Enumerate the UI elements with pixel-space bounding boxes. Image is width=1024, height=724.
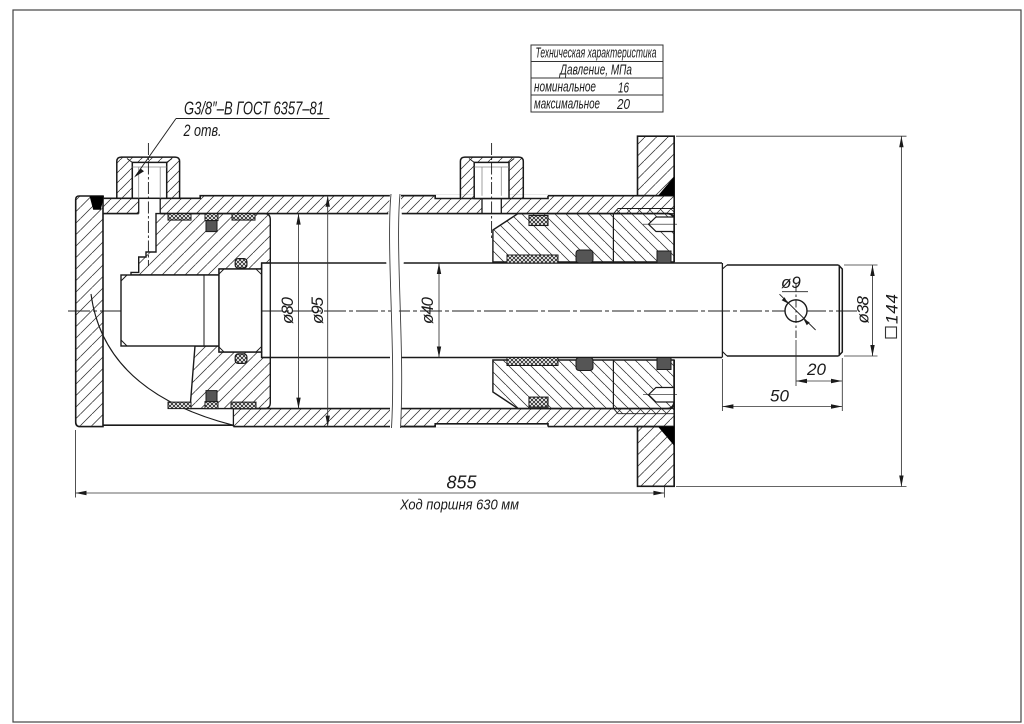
- svg-text:ø40: ø40: [418, 296, 437, 324]
- svg-text:855: 855: [447, 473, 478, 493]
- svg-text:G3/8″–B ГОСТ 6357–81: G3/8″–B ГОСТ 6357–81: [184, 99, 324, 119]
- svg-text:144: 144: [883, 294, 902, 324]
- svg-text:Давление, МПа: Давление, МПа: [559, 62, 632, 79]
- svg-text:ø9: ø9: [781, 273, 801, 292]
- svg-text:20: 20: [616, 96, 630, 113]
- svg-text:Техническая характеристика: Техническая характеристика: [536, 46, 657, 62]
- svg-text:2 отв.: 2 отв.: [183, 122, 222, 140]
- svg-text:ø95: ø95: [308, 296, 327, 324]
- svg-text:ø38: ø38: [854, 295, 873, 323]
- svg-text:Ход поршня 630 мм: Ход поршня 630 мм: [399, 497, 519, 514]
- svg-text:ø80: ø80: [278, 296, 297, 324]
- svg-text:номинальное: номинальное: [534, 79, 596, 96]
- svg-text:50: 50: [770, 387, 789, 406]
- svg-text:16: 16: [618, 80, 629, 97]
- svg-text:максимальное: максимальное: [534, 96, 600, 113]
- svg-text:20: 20: [806, 360, 826, 379]
